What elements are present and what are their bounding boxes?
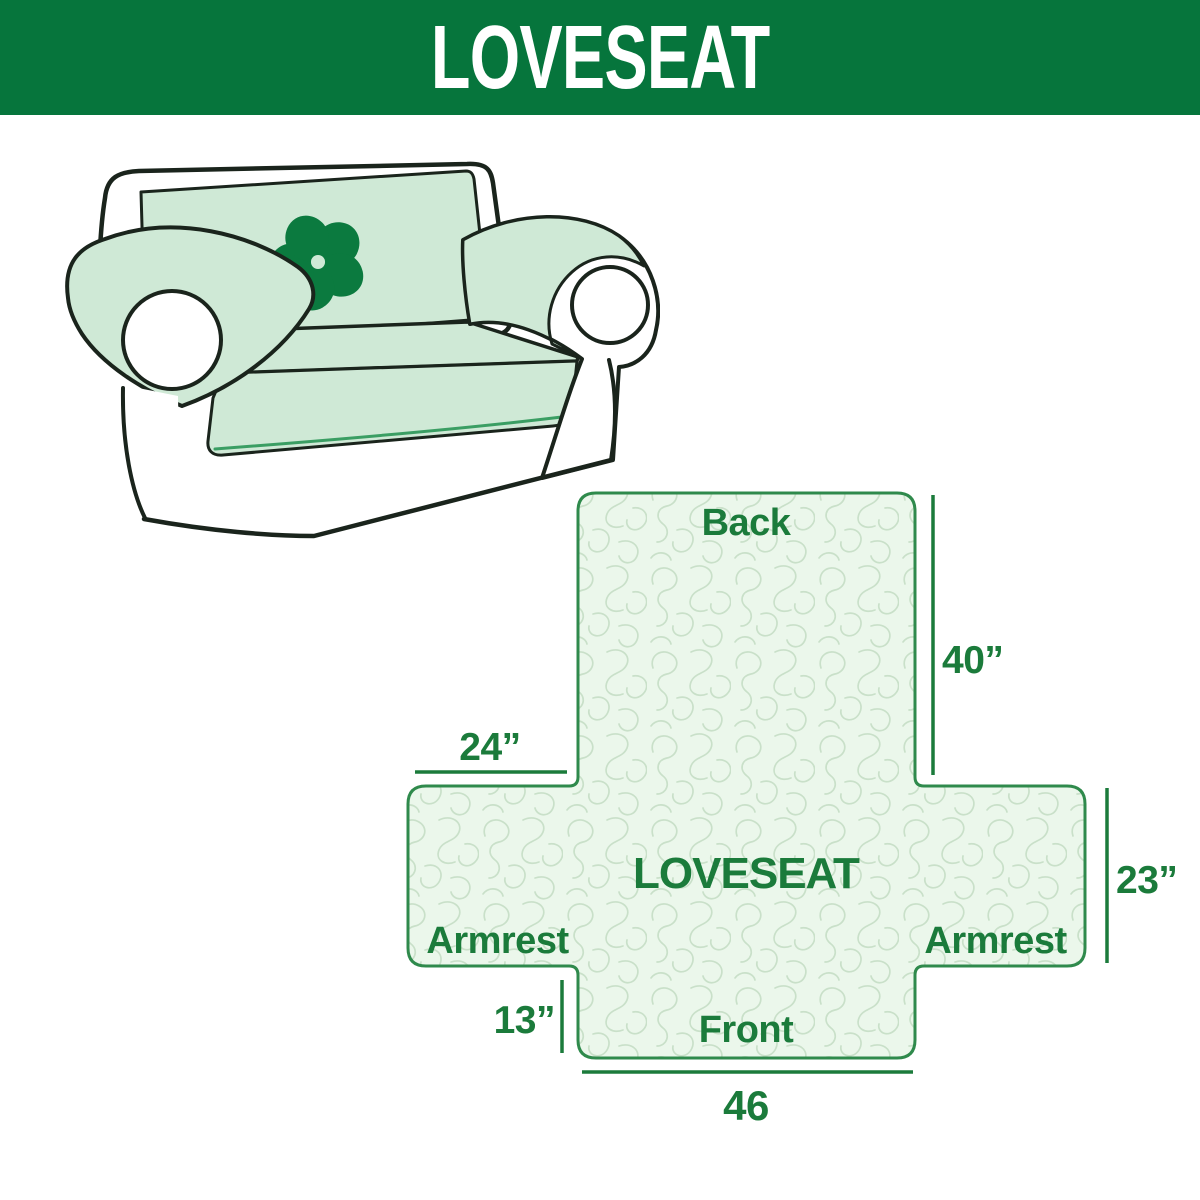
sofa-left-arm-scroll	[123, 291, 221, 389]
label-armrest-right: Armrest	[903, 921, 1088, 963]
sofa-left-arm-body	[123, 385, 180, 523]
dimension-front-drop: 13”	[455, 1000, 555, 1043]
dimension-side-height: 23”	[1116, 860, 1177, 903]
label-front: Front	[577, 1010, 915, 1052]
label-center-loveseat: LOVESEAT	[577, 850, 915, 898]
dimension-bottom-width: 46	[577, 1083, 915, 1129]
dimension-armrest-top-width: 24”	[410, 727, 570, 770]
header-banner: LOVESEAT	[0, 0, 1200, 115]
label-armrest-left: Armrest	[405, 921, 590, 963]
product-image: LOVESEAT	[0, 0, 1200, 1200]
dimension-back-height: 40”	[942, 640, 1003, 683]
sofa-right-arm-scroll	[572, 267, 648, 343]
cover-layout-diagram	[395, 480, 1185, 1080]
label-back: Back	[577, 503, 915, 545]
header-title: LOVESEAT	[431, 13, 770, 103]
cover-shape-quilting	[408, 493, 1085, 1058]
